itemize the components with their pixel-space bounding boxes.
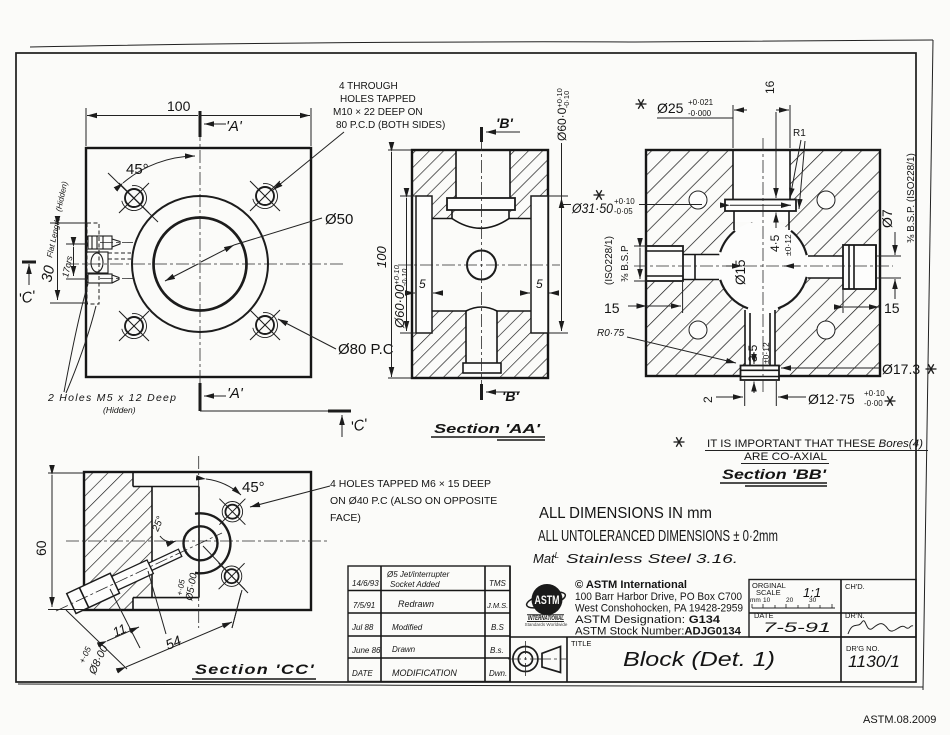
svg-text:ASTM: ASTM bbox=[535, 595, 560, 607]
svg-text:R0·75: R0·75 bbox=[597, 328, 625, 339]
svg-text:30: 30 bbox=[809, 597, 817, 604]
svg-text:HOLES TAPPED: HOLES TAPPED bbox=[340, 94, 416, 105]
svg-text:B.S: B.S bbox=[491, 623, 505, 632]
svg-text:10: 10 bbox=[763, 597, 771, 604]
svg-text:ALL DIMENSIONS IN mm: ALL DIMENSIONS IN mm bbox=[539, 505, 712, 522]
svg-text:DR'N.: DR'N. bbox=[845, 611, 865, 620]
svg-text:+0·10: +0·10 bbox=[864, 389, 885, 398]
svg-text:Ø60·0+0·10-0·10: Ø60·0+0·10-0·10 bbox=[555, 88, 571, 141]
svg-text:20: 20 bbox=[786, 597, 794, 604]
svg-text:© ASTM International: © ASTM International bbox=[575, 579, 687, 591]
svg-text:ASTM Stock Number:ADJG0134: ASTM Stock Number:ADJG0134 bbox=[575, 626, 742, 638]
svg-text:Ø7: Ø7 bbox=[879, 209, 895, 228]
svg-text:'B': 'B' bbox=[496, 115, 513, 131]
svg-text:(ISO228/1): (ISO228/1) bbox=[604, 236, 615, 285]
svg-text:ASTM.08.2009: ASTM.08.2009 bbox=[863, 714, 936, 726]
svg-text:West Conshohocken, PA 19428-2: West Conshohocken, PA 19428-2959 bbox=[575, 603, 743, 615]
svg-text:Socket Added: Socket Added bbox=[390, 580, 440, 589]
svg-text:100 Barr Harbor Drive, PO Box: 100 Barr Harbor Drive, PO Box C700 bbox=[575, 591, 742, 603]
svg-text:ON Ø40 P.C (ALSO ON OPPOSITE: ON Ø40 P.C (ALSO ON OPPOSITE bbox=[330, 495, 497, 507]
svg-text:Standards Worldwide: Standards Worldwide bbox=[525, 622, 568, 627]
svg-text:Section 'CC': Section 'CC' bbox=[195, 661, 315, 677]
svg-text:B.s.: B.s. bbox=[490, 646, 504, 655]
svg-text:FACE): FACE) bbox=[330, 512, 361, 524]
svg-text:-0·000: -0·000 bbox=[688, 109, 712, 118]
svg-text:45°: 45° bbox=[126, 161, 149, 178]
svg-text:+0·021: +0·021 bbox=[688, 98, 714, 107]
svg-text:TITLE: TITLE bbox=[571, 639, 591, 648]
svg-text:'A': 'A' bbox=[227, 385, 244, 402]
svg-text:J.M.S.: J.M.S. bbox=[486, 601, 508, 610]
svg-text:DATE: DATE bbox=[754, 611, 773, 620]
svg-text:Block (Det. 1): Block (Det. 1) bbox=[623, 649, 775, 671]
svg-text:(Hidden): (Hidden) bbox=[103, 405, 136, 415]
svg-text:7-5-91: 7-5-91 bbox=[763, 620, 831, 635]
svg-text:Section 'AA': Section 'AA' bbox=[434, 421, 541, 436]
svg-text:Modified: Modified bbox=[392, 623, 423, 632]
svg-text:Ø50: Ø50 bbox=[325, 211, 353, 228]
svg-text:Ø25: Ø25 bbox=[657, 100, 684, 116]
svg-text:15: 15 bbox=[604, 300, 620, 316]
svg-text:2: 2 bbox=[701, 396, 715, 403]
svg-text:SCALE: SCALE bbox=[756, 588, 781, 597]
svg-text:R1: R1 bbox=[793, 128, 806, 139]
svg-text:+0·10: +0·10 bbox=[614, 197, 635, 206]
svg-text:Ø15: Ø15 bbox=[733, 259, 748, 285]
svg-text:⅜ B.S.P. (ISO228/1): ⅜ B.S.P. (ISO228/1) bbox=[906, 153, 917, 243]
svg-text:Ø31·50: Ø31·50 bbox=[571, 200, 613, 216]
svg-text:1130/1: 1130/1 bbox=[848, 652, 900, 671]
svg-text:Ø5 Jet/interrupter: Ø5 Jet/interrupter bbox=[386, 570, 450, 579]
svg-text:4 THROUGH: 4 THROUGH bbox=[339, 81, 398, 92]
svg-text:7/5/91: 7/5/91 bbox=[353, 601, 375, 610]
svg-text:Ø80 P.C: Ø80 P.C bbox=[338, 341, 394, 358]
svg-text:Stainless Steel 3.16.: Stainless Steel 3.16. bbox=[566, 551, 738, 566]
svg-text:-0·00: -0·00 bbox=[864, 399, 883, 408]
svg-text:45°: 45° bbox=[242, 479, 265, 496]
svg-text:5: 5 bbox=[536, 277, 543, 291]
svg-text:IT IS IMPORTANT THAT THESE Bor: IT IS IMPORTANT THAT THESE Bores(4) bbox=[707, 438, 923, 450]
svg-text:Ø17.3: Ø17.3 bbox=[882, 361, 920, 377]
svg-text:80 P.C.D (BOTH SIDES): 80 P.C.D (BOTH SIDES) bbox=[336, 120, 445, 131]
svg-text:16: 16 bbox=[763, 80, 777, 94]
svg-text:4·5: 4·5 bbox=[768, 234, 782, 252]
svg-text:2 Holes M5 x 12 Deep: 2 Holes M5 x 12 Deep bbox=[47, 392, 176, 404]
svg-text:60: 60 bbox=[33, 540, 49, 556]
svg-text:TMS: TMS bbox=[489, 579, 507, 588]
svg-text:Redrawn: Redrawn bbox=[398, 599, 434, 609]
svg-text:±0·12: ±0·12 bbox=[783, 234, 793, 256]
svg-text:Dwn.: Dwn. bbox=[489, 669, 507, 678]
svg-text:-0·05: -0·05 bbox=[614, 207, 633, 216]
svg-text:4 HOLES TAPPED M6 × 15 DEEP: 4 HOLES TAPPED M6 × 15 DEEP bbox=[330, 478, 491, 490]
svg-text:CH'D.: CH'D. bbox=[845, 582, 865, 591]
svg-text:5: 5 bbox=[419, 277, 426, 291]
svg-text:ASTM Designation: G134: ASTM Designation: G134 bbox=[575, 614, 721, 626]
svg-text:Jul 88: Jul 88 bbox=[351, 623, 374, 632]
svg-text:⅜ B.S.P: ⅜ B.S.P bbox=[620, 245, 631, 282]
svg-text:ARE CO-AXIAL: ARE CO-AXIAL bbox=[744, 451, 827, 463]
svg-text:June 86: June 86 bbox=[351, 646, 381, 655]
svg-text:3·5: 3·5 bbox=[746, 344, 760, 362]
svg-text:DATE: DATE bbox=[352, 669, 373, 678]
svg-text:Ø60·00+0·10-0·10: Ø60·00+0·10-0·10 bbox=[392, 264, 409, 329]
svg-text:Section 'BB': Section 'BB' bbox=[722, 466, 827, 482]
svg-text:'B': 'B' bbox=[502, 388, 519, 404]
svg-text:MODIFICATION: MODIFICATION bbox=[392, 668, 457, 678]
svg-text:Ø12·75: Ø12·75 bbox=[808, 391, 855, 407]
svg-text:M10 × 22 DEEP ON: M10 × 22 DEEP ON bbox=[333, 107, 423, 118]
svg-text:±0·12: ±0·12 bbox=[761, 342, 771, 364]
svg-text:ALL UNTOLERANCED DIMENSIONS: ALL UNTOLERANCED DIMENSIONS ± 0·2mm bbox=[538, 528, 778, 545]
svg-text:Drawn: Drawn bbox=[392, 645, 416, 654]
svg-text:100: 100 bbox=[167, 98, 191, 114]
svg-text:mm: mm bbox=[750, 597, 761, 604]
svg-text:'A': 'A' bbox=[226, 118, 243, 135]
svg-text:14/6/93: 14/6/93 bbox=[352, 579, 379, 588]
svg-text:15: 15 bbox=[884, 300, 900, 316]
svg-text:100: 100 bbox=[374, 246, 389, 268]
